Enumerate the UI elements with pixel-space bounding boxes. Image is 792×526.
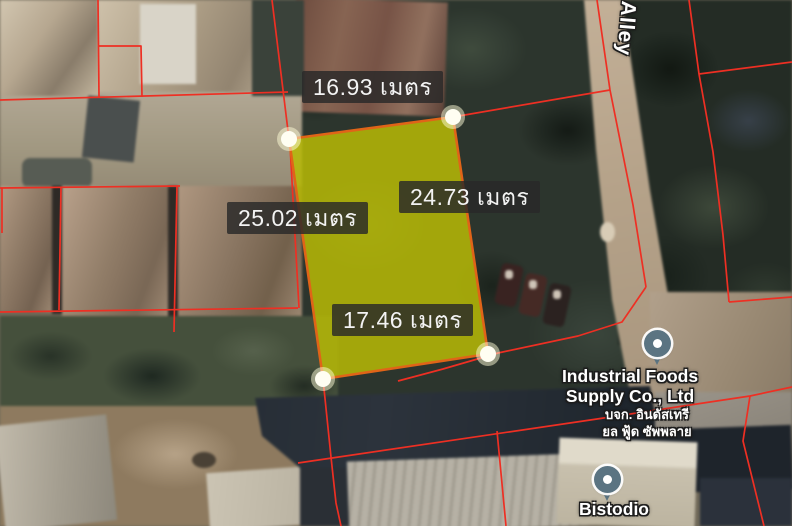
plot-corner-marker[interactable]: [445, 109, 461, 125]
place-name-line2: Supply Co., Ltd: [505, 386, 755, 406]
place-name-thai-line1: บจก. อินดัสเทรี: [539, 407, 755, 424]
satellite-map-view[interactable]: 16.93 เมตร 24.73 เมตร 25.02 เมตร 17.46 เ…: [0, 0, 792, 526]
cadastral-line: [0, 186, 180, 188]
cadastral-line: [0, 92, 288, 100]
land-plot-polygon[interactable]: [289, 117, 488, 379]
plot-corner-marker[interactable]: [480, 346, 496, 362]
cadastral-line: [0, 308, 298, 312]
cadastral-line: [750, 387, 792, 396]
cadastral-line: [689, 0, 729, 302]
cadastral-line: [699, 62, 792, 74]
cadastral-line: [59, 187, 61, 310]
measurement-label-right: 24.73 เมตร: [399, 181, 540, 213]
place-name-line1: Industrial Foods: [505, 366, 755, 386]
place-name-thai-line2: ยล ฟู้ด ซัพพลาย: [539, 424, 755, 441]
plot-corner-marker[interactable]: [315, 371, 331, 387]
cadastral-line: [272, 0, 289, 139]
measurement-label-top: 16.93 เมตร: [302, 71, 443, 103]
place-label-industrial-foods[interactable]: Industrial Foods Supply Co., Ltd บจก. อิ…: [505, 366, 755, 440]
road-label-alley: Alley: [611, 0, 640, 57]
cadastral-line: [99, 46, 142, 97]
plot-corner-marker[interactable]: [281, 131, 297, 147]
place-pin-industrial-foods[interactable]: [644, 330, 672, 368]
cadastral-line: [323, 379, 341, 526]
measurement-label-left: 25.02 เมตร: [227, 202, 368, 234]
measurement-label-bottom: 17.46 เมตร: [332, 304, 473, 336]
cadastral-line: [497, 431, 506, 526]
cadastral-line: [453, 90, 610, 117]
pin-dot-icon: [603, 475, 612, 484]
cadastral-line: [729, 297, 792, 302]
cadastral-line: [98, 0, 99, 97]
pin-dot-icon: [653, 339, 662, 348]
place-label-bistodio[interactable]: Bistodio: [558, 499, 670, 520]
